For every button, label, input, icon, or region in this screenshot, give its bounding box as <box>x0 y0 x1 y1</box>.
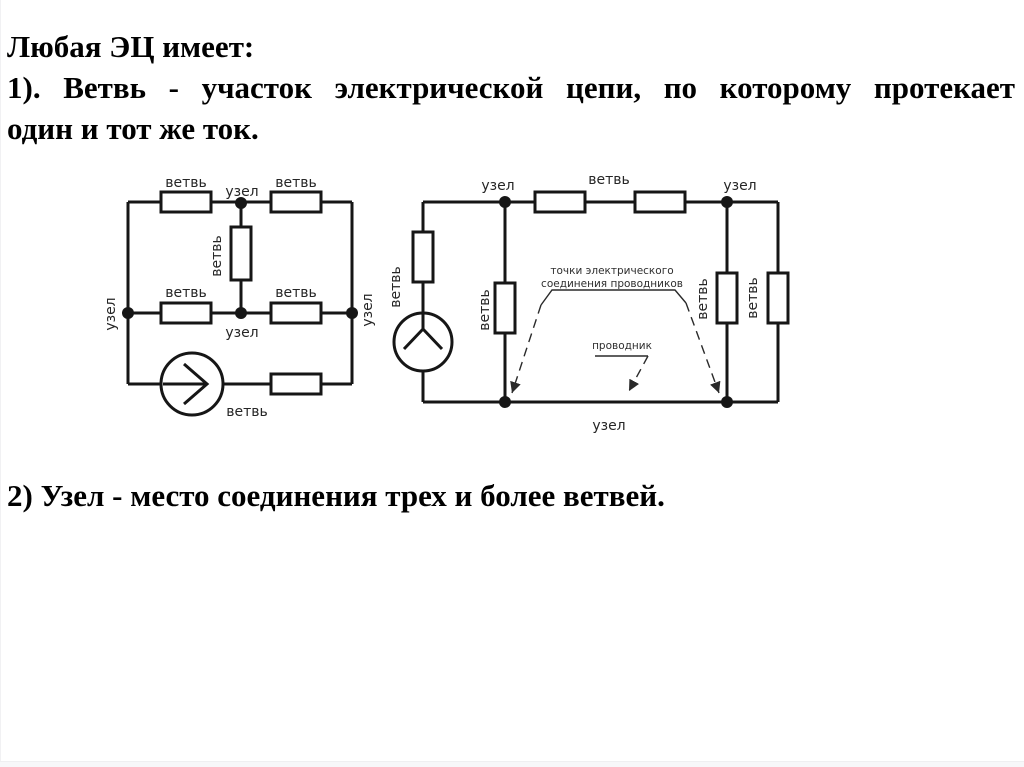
branch-label: ветвь <box>275 175 317 191</box>
branch-label: ветвь <box>588 172 630 188</box>
conductor-callout <box>595 356 648 391</box>
resistor <box>768 273 788 323</box>
slide-heading: Любая ЭЦ имеет: <box>7 26 1015 67</box>
resistor <box>717 273 737 323</box>
connection-points-label-line2: соединения проводников <box>541 278 683 290</box>
resistor <box>271 303 321 323</box>
node-definition: 2) Узел - место соединения трех и более … <box>7 475 1017 516</box>
node-label: узел <box>103 297 119 330</box>
node-label: узел <box>723 178 756 194</box>
resistor <box>161 303 211 323</box>
slide-text-block: Любая ЭЦ имеет: 1). Ветвь - участок элек… <box>7 26 1015 149</box>
branch-label: ветвь <box>477 289 493 331</box>
node-label: узел <box>360 293 376 326</box>
slide-bottom-edge <box>0 761 1024 767</box>
branch-label: ветвь <box>226 404 268 420</box>
left-circuit-diagram: ветвь узел ветвь ветвь ветвь ветвь узел … <box>103 175 376 420</box>
branch-definition-line1: 1). Ветвь - участок электрической цепи, … <box>7 67 1015 108</box>
resistor <box>535 192 585 212</box>
node-label: узел <box>592 418 625 434</box>
branch-label: ветвь <box>209 235 225 277</box>
conductor-label: проводник <box>592 340 652 352</box>
branch-label: ветвь <box>388 266 404 308</box>
circuit-diagrams: ветвь узел ветвь ветвь ветвь ветвь узел … <box>0 158 1024 458</box>
resistor <box>413 232 433 282</box>
slide: Любая ЭЦ имеет: 1). Ветвь - участок элек… <box>0 0 1024 767</box>
branch-definition-line2: один и тот же ток. <box>7 108 1015 149</box>
node-label: узел <box>225 325 258 341</box>
resistor <box>271 192 321 212</box>
branch-label: ветвь <box>165 285 207 301</box>
right-circuit-diagram: узел ветвь узел ветвь ветвь ветвь ветвь … <box>388 172 788 434</box>
branch-label: ветвь <box>165 175 207 191</box>
resistor <box>271 374 321 394</box>
node-label: узел <box>225 184 258 200</box>
branch-label: ветвь <box>695 278 711 320</box>
current-source-icon <box>161 353 223 415</box>
node-label: узел <box>481 178 514 194</box>
connection-points-label-line1: точки электрического <box>550 265 673 277</box>
branch-label: ветвь <box>745 277 761 319</box>
resistor <box>635 192 685 212</box>
branch-label: ветвь <box>275 285 317 301</box>
resistor <box>231 227 251 280</box>
resistor <box>161 192 211 212</box>
slide-left-edge <box>0 0 1 767</box>
current-source-icon <box>394 313 452 371</box>
resistor <box>495 283 515 333</box>
